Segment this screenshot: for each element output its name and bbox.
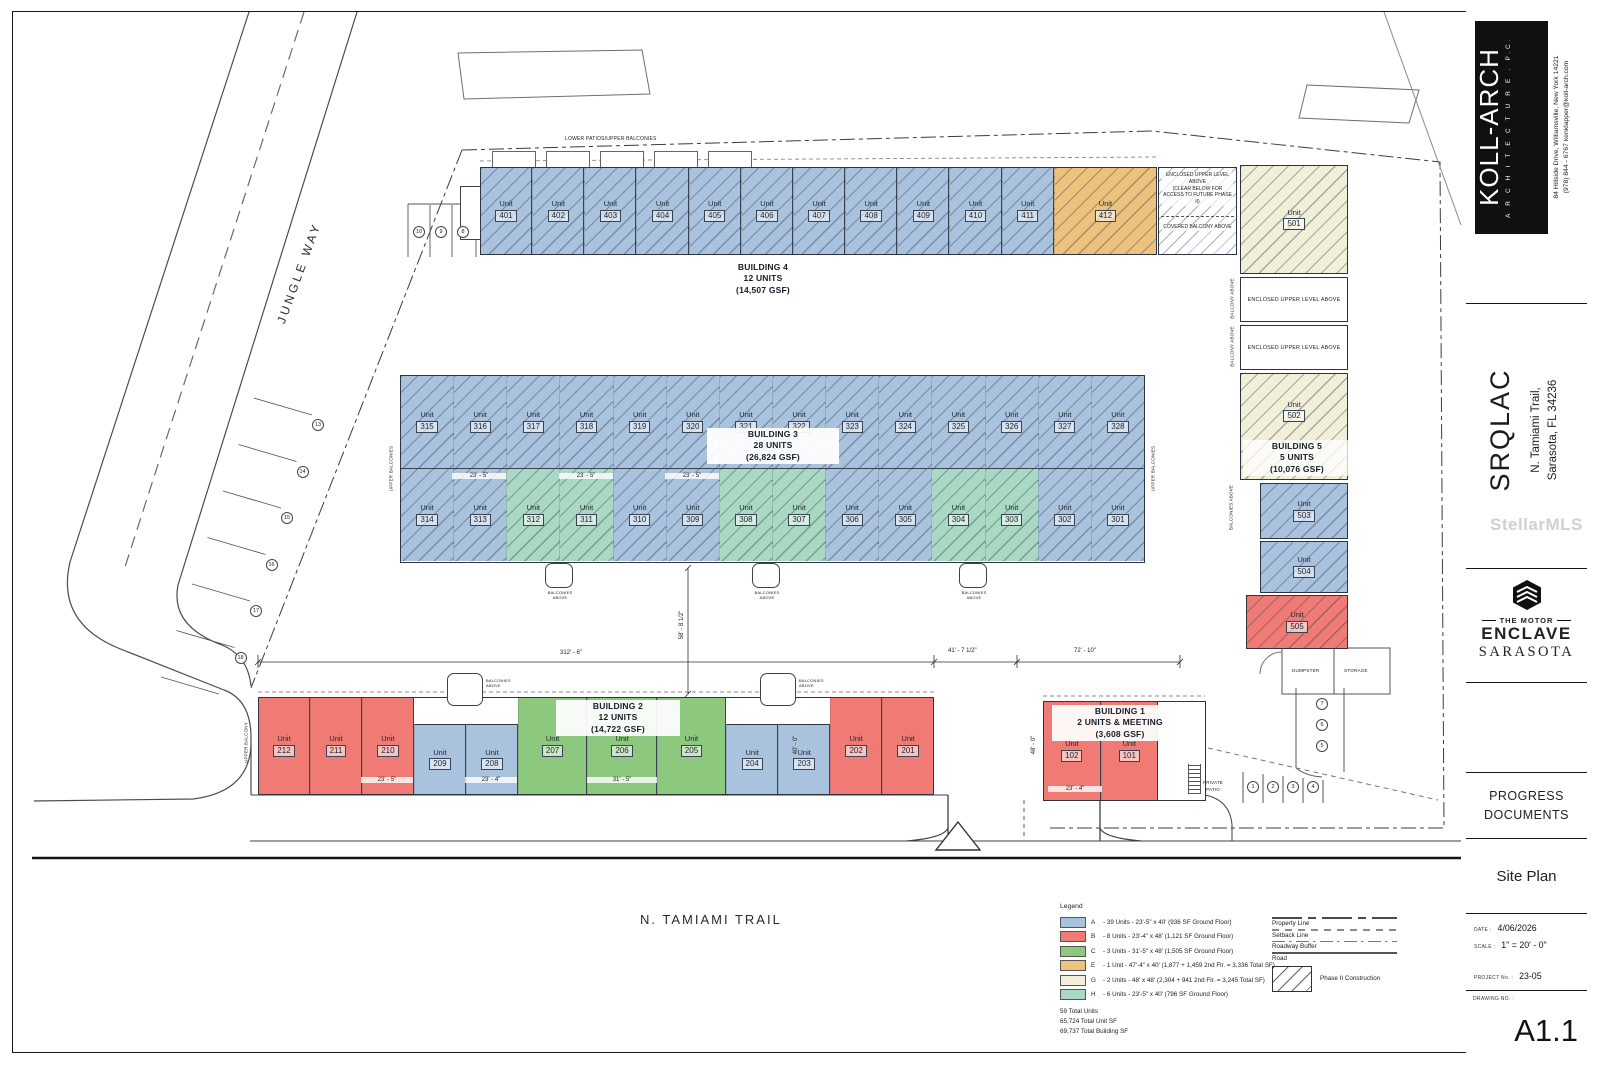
dim-23-4-b2: 23' - 4" [465,777,517,783]
unit-503-cell: Unit503 [1260,483,1348,539]
legend-phase2-row: Phase II Construction [1272,966,1400,992]
parking-space-2: 2 [1267,781,1279,793]
tb-client-section: THE MOTOR ENCLAVE SARASOTA [1466,568,1587,682]
legend-line-setback: Setback Line [1272,929,1400,939]
unit-403: Unit403 [584,168,636,254]
street-label-tamiami-trail: N. TAMIAMI TRAIL [640,912,782,927]
legend-swatch-H [1060,989,1086,1000]
legend-swatch-A [1060,917,1086,928]
legend-phase2-label: Phase II Construction [1320,975,1380,982]
unit-202: Unit202 [830,698,882,794]
enclosed-upper-box-2: ENCLOSED UPPER LEVEL ABOVE [1240,325,1348,370]
dim-23-5-b3-1: 23' - 5" [452,473,506,479]
unit-307: Unit307 [772,469,825,561]
unit-405: Unit405 [689,168,741,254]
date-row: DATE :4/06/2026 [1474,923,1537,933]
motor-enclave-hexagon-icon [1510,578,1544,612]
note-upper-balconies-east: UPPER BALCONIES [1151,440,1156,498]
building3-label: BUILDING 328 UNITS(26,824 GSF) [707,428,839,464]
legend-total-line: 65,724 Total Unit SF [1060,1017,1128,1027]
legend-row-B: B- 8 Units - 23'-4" x 48' (1,121 SF Grou… [1060,930,1275,945]
unit-324: Unit324 [878,376,931,468]
legend-totals: 59 Total Units65,724 Total Unit SF69,737… [1060,1007,1128,1036]
unit-410: Unit410 [949,168,1001,254]
parking-space-10: 10 [413,226,425,238]
legend-swatch-G [1060,975,1086,986]
unit-306: Unit306 [825,469,878,561]
parking-space-14: 14 [297,466,309,478]
scale-row: SCALE :1" = 20' - 0" [1474,940,1547,950]
unit-312: Unit312 [506,469,559,561]
parking-space-4: 4 [1307,781,1319,793]
building3-stair-pod [752,563,780,588]
building5-label: BUILDING 55 UNITS(10,076 GSF) [1243,440,1351,476]
firm-logo-text: KOLL-ARCH A R C H I T E C T U R E . P.C. [1476,22,1546,232]
legend-swatch-C [1060,946,1086,957]
unit-310: Unit310 [613,469,666,561]
building4-label: BUILDING 412 UNITS(14,507 GSF) [700,261,826,297]
site-plan-sheet: JUNGLE WAY N. TAMIAMI TRAIL StellarMLS L… [0,0,1600,1066]
unit-209: Unit209 [414,724,466,794]
note-dumpster: DUMPSTER [1292,668,1319,673]
building3-stair-pod [545,563,573,588]
client-logo-line2: ENCLAVE [1481,625,1571,644]
phase2-hatch-swatch [1272,966,1312,992]
unit-411: Unit411 [1002,168,1054,254]
note-upper-balcony: UPPER BALCONY [244,719,249,767]
note-balconies-above-b2-1: BALCONIES ABOVE [486,678,520,688]
unit-212: Unit212 [259,698,310,794]
unit-305: Unit305 [878,469,931,561]
legend-total-line: 69,737 Total Building SF [1060,1027,1128,1037]
dim-23-5-b3-2: 23' - 5" [559,473,613,479]
building2-stair-pod-1 [447,673,483,706]
note-balconies-above-pod3: BALCONIES ABOVE [954,590,994,600]
legend-line-property: Property Line [1272,917,1400,927]
legend-total-line: 59 Total Units [1060,1007,1128,1017]
tb-sheet-title-section: Site Plan [1466,838,1587,913]
note-balcony-above-1: BALCONY ABOVE [1230,277,1235,321]
note-lower-patios: LOWER PATIOS/UPPER BALCONIES [565,136,657,142]
unit-304: Unit304 [931,469,984,561]
parking-space-17: 17 [250,605,262,617]
note-balconies-above-b5: BALCONIES ABOVE [1229,482,1234,534]
note-covered-balcony: COVERED BALCONY ABOVE [1162,224,1233,231]
drawing-no-label: DRAWING NO. : [1473,996,1514,1002]
stellar-mls-watermark: StellarMLS [1490,515,1583,535]
dim-72-10: 72' - 10" [1074,648,1096,654]
unit-303: Unit303 [985,469,1038,561]
phase2-access-area: ENCLOSED UPPER LEVEL ABOVE(CLEAR BELOW F… [1158,167,1237,255]
legend: Legend A- 39 Units - 23'-5" x 40' (936 S… [1060,903,1275,1002]
parking-space-13: 13 [312,419,324,431]
note-upper-balconies-west: UPPER BALCONIES [389,440,394,498]
dim-41-7: 41' - 7 1/2" [948,648,977,654]
unit-301: Unit301 [1091,469,1144,561]
parking-space-7: 7 [1316,698,1328,710]
unit-402: Unit402 [532,168,584,254]
drawing-number: A1.1 [1514,1013,1578,1049]
dim-48-0: 48' - 0" [1031,725,1037,765]
building3: Unit315Unit316Unit317Unit318Unit319Unit3… [400,375,1145,563]
parking-space-1: 1 [1247,781,1259,793]
firm-address: 84 Hillside Drive, Williamsville, New Yo… [1552,22,1580,232]
status-text: PROGRESSDOCUMENTS [1484,787,1569,823]
unit-501-cell: Unit501 [1240,165,1348,274]
parking-space-8: 8 [457,226,469,238]
parking-space-15: 15 [281,512,293,524]
dim-23-4-b1: 23' - 4" [1048,786,1102,792]
dim-58-8: 58' - 8 1/2" [679,595,685,655]
divider [1161,216,1234,217]
unit-313: Unit313 [453,469,506,561]
note-enclosed-access: ENCLOSED UPPER LEVEL ABOVE(CLEAR BELOW F… [1162,172,1233,206]
note-balcony-above-2: BALCONY ABOVE [1230,325,1235,369]
unit-208: Unit208 [466,724,518,794]
project-no-row: PROJECT No. :23-05 [1474,971,1542,981]
legend-title: Legend [1060,903,1275,910]
legend-row-H: H- 6 Units - 23'-5" x 40' (796 SF Ground… [1060,988,1275,1003]
unit-407: Unit407 [793,168,845,254]
parking-space-9: 9 [435,226,447,238]
building3-stair-pod [959,563,987,588]
enclosed-upper-box-1: ENCLOSED UPPER LEVEL ABOVE [1240,277,1348,322]
tb-drawing-no-section: DRAWING NO. : A1.1 [1466,990,1587,1053]
legend-row-C: C- 3 Units - 31'-5" x 48' (1,505 SF Grou… [1060,944,1275,959]
building3-bottom-row: Unit314Unit313Unit312Unit311Unit310Unit3… [401,469,1144,561]
legend-row-A: A- 39 Units - 23'-5" x 40' (936 SF Groun… [1060,915,1275,930]
unit-201: Unit201 [882,698,933,794]
unit-211: Unit211 [310,698,362,794]
tb-empty-section [1466,682,1587,772]
dim-40-0: 40' - 0" [793,725,799,765]
legend-line-road: Road [1272,952,1400,961]
parking-space-16: 16 [266,559,278,571]
parking-space-6: 6 [1316,719,1328,731]
unit-504-cell: Unit504 [1260,541,1348,593]
parking-space-3: 3 [1287,781,1299,793]
legend-row-G: G- 2 Units - 48' x 48' (2,304 + 941 2nd … [1060,973,1275,988]
unit-316: Unit316 [453,376,506,468]
note-private-patio: PRIVATE PATIO [1200,780,1226,794]
note-balconies-above-b2-2: BALCONIES ABOVE [799,678,833,688]
legend-swatch-E [1060,960,1086,971]
unit-409: Unit409 [897,168,949,254]
legend-type-rows: A- 39 Units - 23'-5" x 40' (936 SF Groun… [1060,915,1275,1002]
unit-326: Unit326 [985,376,1038,468]
unit-311: Unit311 [559,469,612,561]
unit-327: Unit327 [1038,376,1091,468]
unit-325: Unit325 [931,376,984,468]
parking-space-5: 5 [1316,740,1328,752]
building2-label: BUILDING 212 UNITS(14,722 GSF) [556,700,680,736]
unit-412: Unit412 [1054,168,1156,254]
unit-317: Unit317 [506,376,559,468]
tb-status-section: PROGRESSDOCUMENTS [1466,772,1587,838]
building1-label: BUILDING 12 UNITS & MEETING(3,608 GSF) [1052,705,1188,741]
unit-302: Unit302 [1038,469,1091,561]
unit-505-cell: Unit505 [1246,595,1348,649]
legend-swatch-B [1060,931,1086,942]
unit-328: Unit328 [1091,376,1144,468]
unit-319: Unit319 [613,376,666,468]
unit-404: Unit404 [636,168,688,254]
unit-314: Unit314 [401,469,453,561]
sheet-title: Site Plan [1496,868,1556,885]
legend-row-E: E- 1 Unit - 47'-4" x 40' (1,877 + 1,459 … [1060,959,1275,974]
legend-line-buffer: Roadway Buffer [1272,941,1400,951]
unit-315: Unit315 [401,376,453,468]
unit-204: Unit204 [726,724,778,794]
unit-318: Unit318 [559,376,612,468]
note-storage: STORAGE [1344,668,1368,673]
note-balconies-above-pod1: BALCONIES ABOVE [540,590,580,600]
dim-23-5-b3-3: 23' - 5" [665,473,719,479]
client-logo-line3: SARASOTA [1479,644,1574,661]
legend-line-rows: Property LineSetback LineRoadway BufferR… [1272,917,1400,992]
dim-31-5-b2: 31' - 5" [587,777,657,783]
unit-401: Unit401 [481,168,532,254]
stair-icon [1188,764,1201,794]
unit-203: Unit203 [778,724,830,794]
note-balconies-above-pod2: BALCONIES ABOVE [747,590,787,600]
client-logo: THE MOTOR ENCLAVE SARASOTA [1466,569,1587,661]
unit-309: Unit309 [666,469,719,561]
parking-space-18: 18 [235,652,247,664]
unit-308: Unit308 [719,469,772,561]
dim-312-6: 312' - 6" [560,650,582,656]
building2-stair-pod-2 [760,673,796,706]
building4-units: Unit401Unit402Unit403Unit404Unit405Unit4… [480,167,1157,255]
unit-408: Unit408 [845,168,897,254]
tb-meta-section: DATE :4/06/2026 SCALE :1" = 20' - 0" PRO… [1466,913,1587,990]
dim-23-5-b2: 23' - 5" [361,777,413,783]
unit-406: Unit406 [741,168,793,254]
